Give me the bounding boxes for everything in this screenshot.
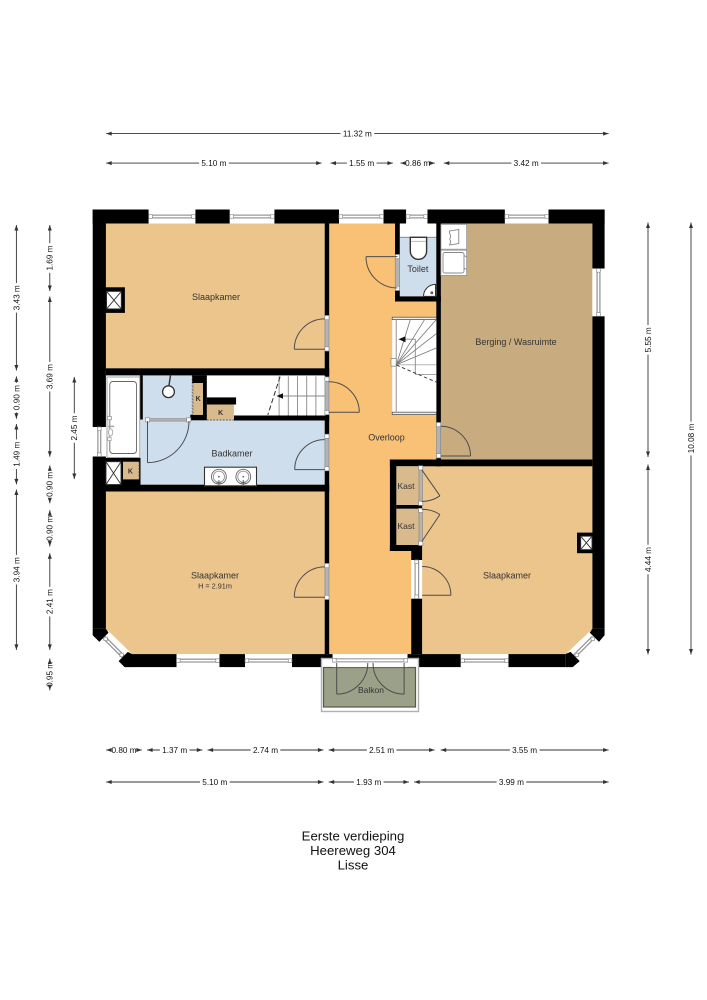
svg-text:10.08 m: 10.08 m — [687, 424, 696, 454]
svg-text:Heereweg 304: Heereweg 304 — [310, 843, 396, 858]
svg-text:0.86 m: 0.86 m — [405, 159, 430, 168]
svg-text:0.95 m: 0.95 m — [46, 662, 55, 687]
svg-text:Eerste verdieping: Eerste verdieping — [302, 829, 405, 844]
svg-text:Slaapkamer: Slaapkamer — [192, 292, 240, 302]
svg-text:K: K — [128, 468, 133, 475]
svg-text:1.55 m: 1.55 m — [349, 159, 374, 168]
svg-text:2.41 m: 2.41 m — [46, 589, 55, 614]
svg-text:Slaapkamer: Slaapkamer — [483, 571, 531, 581]
svg-text:1.93 m: 1.93 m — [356, 778, 381, 787]
svg-text:4.44 m: 4.44 m — [644, 547, 653, 572]
svg-text:Lisse: Lisse — [338, 858, 369, 873]
svg-text:3.99 m: 3.99 m — [499, 778, 524, 787]
svg-text:2.74 m: 2.74 m — [253, 746, 278, 755]
svg-text:H = 2.91m: H = 2.91m — [198, 582, 232, 591]
svg-text:Badkamer: Badkamer — [211, 449, 252, 459]
svg-text:1.37 m: 1.37 m — [162, 746, 187, 755]
svg-text:2.45 m: 2.45 m — [70, 415, 79, 440]
svg-text:0.90 m: 0.90 m — [12, 385, 21, 410]
svg-text:3.42 m: 3.42 m — [514, 159, 539, 168]
svg-text:11.32 m: 11.32 m — [343, 130, 372, 139]
svg-text:Berging / Wasruimte: Berging / Wasruimte — [475, 337, 556, 347]
svg-text:3.55 m: 3.55 m — [512, 746, 537, 755]
svg-text:1.69 m: 1.69 m — [46, 245, 55, 270]
svg-text:0.90 m: 0.90 m — [46, 516, 55, 541]
svg-text:5.10 m: 5.10 m — [201, 159, 226, 168]
svg-text:K: K — [196, 396, 201, 403]
svg-text:K: K — [218, 410, 223, 417]
svg-text:3.94 m: 3.94 m — [12, 557, 21, 582]
svg-text:5.10 m: 5.10 m — [202, 778, 227, 787]
svg-text:1.49 m: 1.49 m — [12, 442, 21, 467]
svg-text:Kast: Kast — [397, 521, 415, 531]
svg-text:Balkon: Balkon — [358, 685, 384, 695]
svg-text:2.51 m: 2.51 m — [369, 746, 394, 755]
svg-text:3.69 m: 3.69 m — [46, 364, 55, 389]
svg-text:0.80 m: 0.80 m — [111, 746, 136, 755]
svg-text:3.43 m: 3.43 m — [12, 285, 21, 310]
svg-text:Toilet: Toilet — [407, 264, 429, 274]
svg-text:Slaapkamer: Slaapkamer — [191, 571, 239, 581]
svg-text:5.55 m: 5.55 m — [644, 327, 653, 352]
svg-text:0.90 m: 0.90 m — [46, 472, 55, 497]
svg-text:Kast: Kast — [397, 481, 415, 491]
svg-text:Overloop: Overloop — [368, 433, 405, 443]
